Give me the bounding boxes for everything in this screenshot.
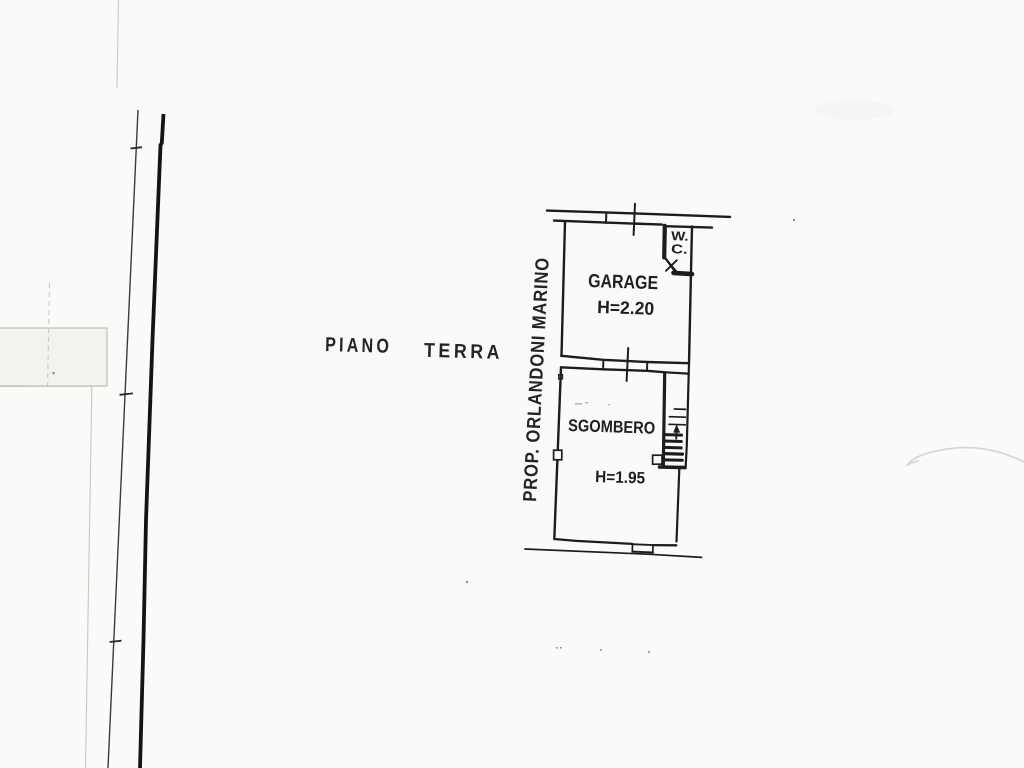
svg-text:TERRA: TERRA (424, 340, 504, 364)
svg-text:C.: C. (671, 241, 688, 257)
svg-text:H=2.20: H=2.20 (597, 297, 655, 319)
svg-text:H=1.95: H=1.95 (595, 468, 646, 488)
svg-text:PIANO: PIANO (325, 334, 393, 358)
svg-text:GARAGE: GARAGE (588, 271, 659, 294)
svg-text:SGOMBERO: SGOMBERO (568, 416, 656, 438)
